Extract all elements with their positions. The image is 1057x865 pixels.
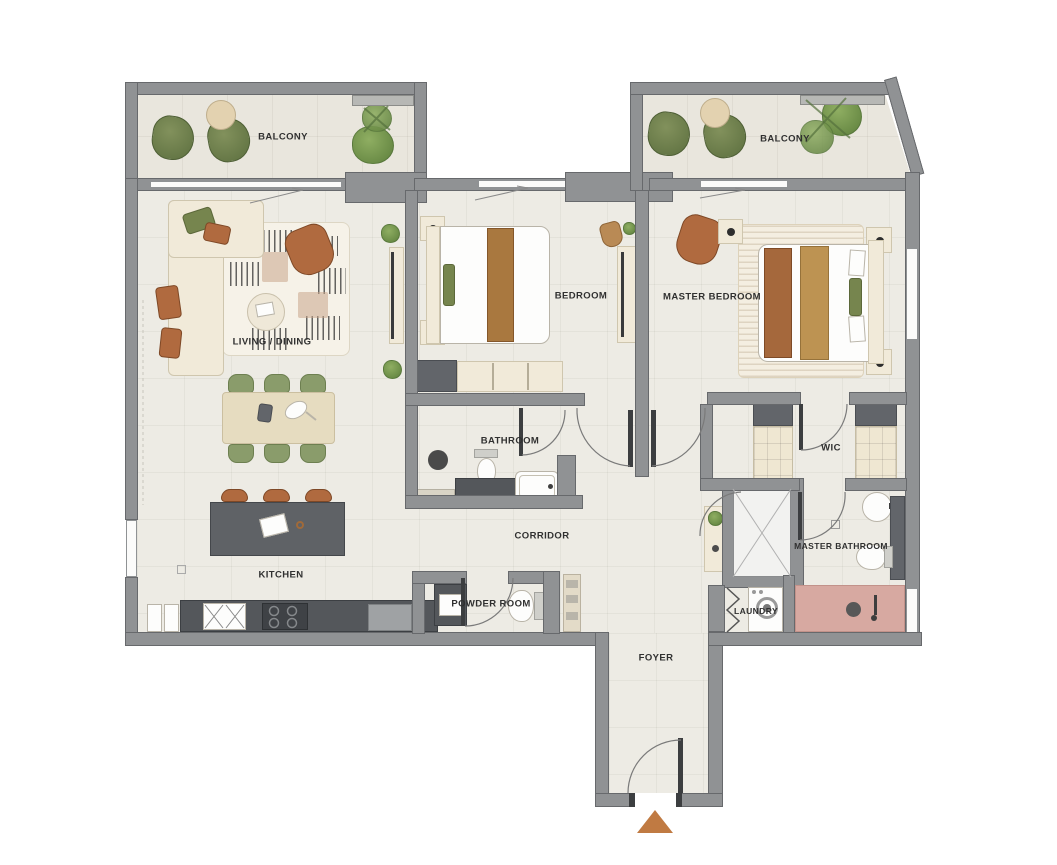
closet-door-line: [492, 363, 494, 390]
shelf-box: [566, 612, 578, 620]
bed-pillow: [849, 278, 862, 316]
sofa-throw: [158, 327, 182, 359]
shaft: [733, 489, 791, 577]
lamp: [727, 228, 735, 236]
wall: [125, 632, 603, 646]
shower-drain: [846, 602, 861, 617]
wall: [680, 793, 723, 807]
bowl: [296, 521, 304, 529]
wall: [630, 82, 896, 95]
closet-door-line: [527, 363, 529, 390]
headboard: [426, 226, 440, 344]
room-label-corridor: CORRIDOR: [515, 531, 570, 542]
washer-control: [759, 590, 763, 594]
wall: [635, 190, 649, 477]
bed-throw: [764, 248, 792, 358]
room-label-laundry: LAUNDRY: [734, 606, 778, 616]
wall: [708, 632, 723, 807]
bed-pillow: [848, 315, 866, 342]
door-leaf: [628, 410, 633, 467]
wall: [707, 392, 801, 405]
nightstand: [718, 219, 743, 244]
room-label-wic: WIC: [821, 443, 841, 454]
wall: [595, 632, 609, 807]
door-leaf: [519, 408, 523, 456]
shelf-box: [566, 595, 578, 603]
shelf-box: [566, 580, 578, 588]
dishwasher: [368, 604, 412, 631]
wall: [595, 793, 633, 807]
wall: [708, 632, 922, 646]
room-label-master-bedroom: MASTER BEDROOM: [663, 292, 761, 303]
palm-plant: [362, 104, 392, 132]
dining-chair: [300, 374, 326, 393]
entrance-marker-icon: [637, 810, 673, 833]
sofa-pillow: [155, 285, 182, 321]
appliance: [164, 604, 179, 632]
wall: [845, 478, 907, 491]
outdoor-table: [206, 100, 236, 130]
door-leaf: [651, 410, 656, 467]
room-label-bedroom: BEDROOM: [555, 291, 607, 302]
balcony-ledge: [800, 95, 885, 105]
wall: [630, 82, 643, 191]
room-label-foyer: FOYER: [639, 653, 674, 664]
tv: [391, 252, 394, 339]
door-post: [629, 793, 635, 807]
floor-plan: BALCONY BALCONY LIVING / DINING BEDROOM …: [0, 0, 1057, 865]
entrance-door-leaf: [678, 738, 683, 793]
washer-control: [752, 590, 756, 594]
room-label-master-bathroom: MASTER BATHROOM: [794, 541, 888, 551]
dining-chair: [264, 444, 290, 463]
console-decor: [712, 545, 719, 552]
table-bowl: [257, 403, 273, 423]
window: [906, 248, 918, 340]
window: [906, 588, 918, 634]
desk-line: [621, 252, 624, 337]
bed-runner: [800, 246, 829, 360]
bar-stool: [305, 489, 332, 502]
plant: [381, 224, 400, 243]
room-label-balcony-right: BALCONY: [760, 134, 810, 145]
plant: [383, 360, 402, 379]
rug-pattern: [318, 268, 346, 294]
headboard: [868, 240, 884, 364]
kitchen-sink: [203, 603, 246, 630]
master-sink: [862, 492, 892, 522]
wall: [905, 172, 920, 646]
appliance: [147, 604, 162, 632]
wall: [412, 571, 467, 584]
bathroom-mirror: [428, 450, 448, 470]
room-label-kitchen: KITCHEN: [258, 570, 303, 581]
wall: [849, 392, 907, 405]
door-post: [676, 793, 682, 807]
door-leaf: [798, 492, 802, 540]
floor-mark: [177, 565, 186, 574]
bed-pillow: [848, 249, 866, 276]
wall: [405, 393, 585, 406]
bed-runner: [487, 228, 514, 342]
floor-mark: [831, 520, 840, 529]
bar-stool: [221, 489, 248, 502]
wall: [543, 571, 560, 634]
room-label-bathroom: BATHROOM: [481, 436, 539, 447]
wall: [708, 585, 725, 632]
wall: [125, 82, 427, 95]
plant: [708, 511, 723, 526]
shower-handle: [874, 595, 877, 615]
wall: [783, 575, 795, 634]
bed-pillow: [443, 264, 455, 306]
stove: [262, 603, 308, 630]
shower-knob: [871, 615, 877, 621]
desk: [617, 246, 636, 343]
room-label-balcony-left: BALCONY: [258, 132, 308, 143]
window: [126, 520, 137, 577]
balcony-ledge: [352, 95, 414, 106]
room-label-living-dining: LIVING / DINING: [233, 337, 312, 348]
tub-drain: [548, 484, 553, 489]
dining-chair: [228, 444, 254, 463]
closet-sliding: [457, 361, 563, 392]
wall: [125, 178, 138, 520]
dining-table: [222, 392, 335, 444]
outdoor-table: [700, 98, 730, 128]
bedroom-window: [478, 180, 566, 188]
wardrobe-top: [855, 404, 897, 426]
toilet-tank: [474, 449, 498, 458]
wardrobe: [855, 426, 897, 486]
master-window: [700, 180, 788, 188]
wall: [700, 478, 800, 491]
bar-stool: [263, 489, 290, 502]
balcony-glass-door: [150, 181, 342, 188]
room-label-powder-room: POWDER ROOM: [451, 599, 530, 610]
wardrobe-top: [753, 404, 793, 426]
door-leaf: [799, 404, 803, 450]
rug-pattern: [298, 292, 328, 318]
closet: [417, 360, 457, 392]
dining-chair: [228, 374, 254, 393]
dining-chair: [300, 444, 326, 463]
dining-chair: [264, 374, 290, 393]
wall: [125, 82, 138, 191]
wall: [405, 495, 583, 509]
wall: [405, 190, 418, 508]
rug-pattern: [230, 262, 260, 286]
rug-pattern: [262, 252, 288, 282]
